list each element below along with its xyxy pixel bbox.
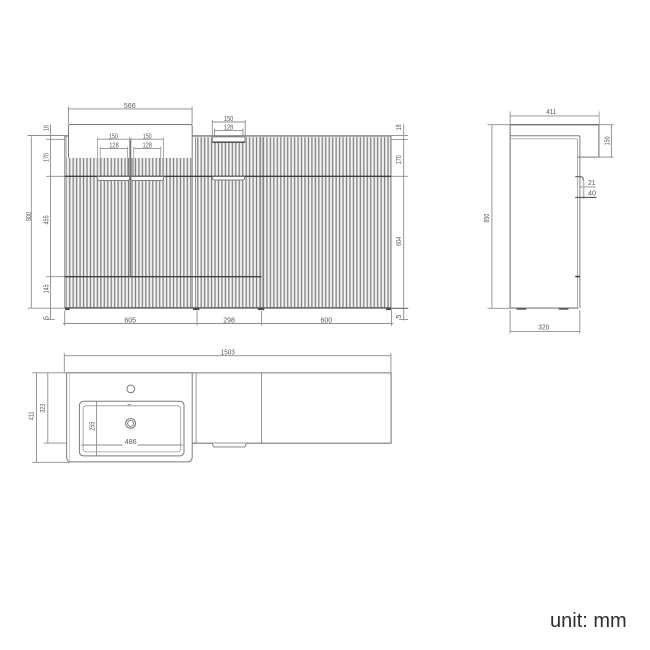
svg-text:18: 18 <box>394 124 403 130</box>
svg-text:850: 850 <box>482 214 491 223</box>
svg-text:128: 128 <box>224 122 234 131</box>
svg-text:21: 21 <box>588 178 596 187</box>
svg-text:128: 128 <box>142 140 152 149</box>
svg-text:411: 411 <box>26 411 35 420</box>
svg-text:604: 604 <box>394 237 403 246</box>
svg-text:800: 800 <box>24 212 33 221</box>
svg-text:298: 298 <box>223 315 235 324</box>
svg-text:5: 5 <box>41 316 50 320</box>
svg-text:150: 150 <box>109 131 118 140</box>
svg-text:unit: mm: unit: mm <box>550 610 627 632</box>
svg-text:170: 170 <box>394 155 403 164</box>
svg-text:150: 150 <box>143 131 152 140</box>
svg-text:486: 486 <box>125 437 137 446</box>
svg-text:145: 145 <box>41 284 50 293</box>
svg-text:411: 411 <box>546 107 556 116</box>
svg-text:18: 18 <box>41 125 50 131</box>
svg-text:128: 128 <box>109 140 119 149</box>
svg-text:605: 605 <box>124 315 136 324</box>
svg-text:255: 255 <box>88 422 97 431</box>
svg-text:455: 455 <box>41 215 50 224</box>
svg-text:5: 5 <box>394 314 403 318</box>
svg-text:320: 320 <box>538 323 549 332</box>
svg-text:566: 566 <box>124 101 136 110</box>
svg-text:600: 600 <box>320 315 332 324</box>
svg-text:150: 150 <box>603 136 612 145</box>
svg-text:40: 40 <box>588 188 596 197</box>
svg-text:170: 170 <box>41 153 50 162</box>
svg-text:323: 323 <box>38 404 47 413</box>
svg-text:1503: 1503 <box>221 348 235 357</box>
